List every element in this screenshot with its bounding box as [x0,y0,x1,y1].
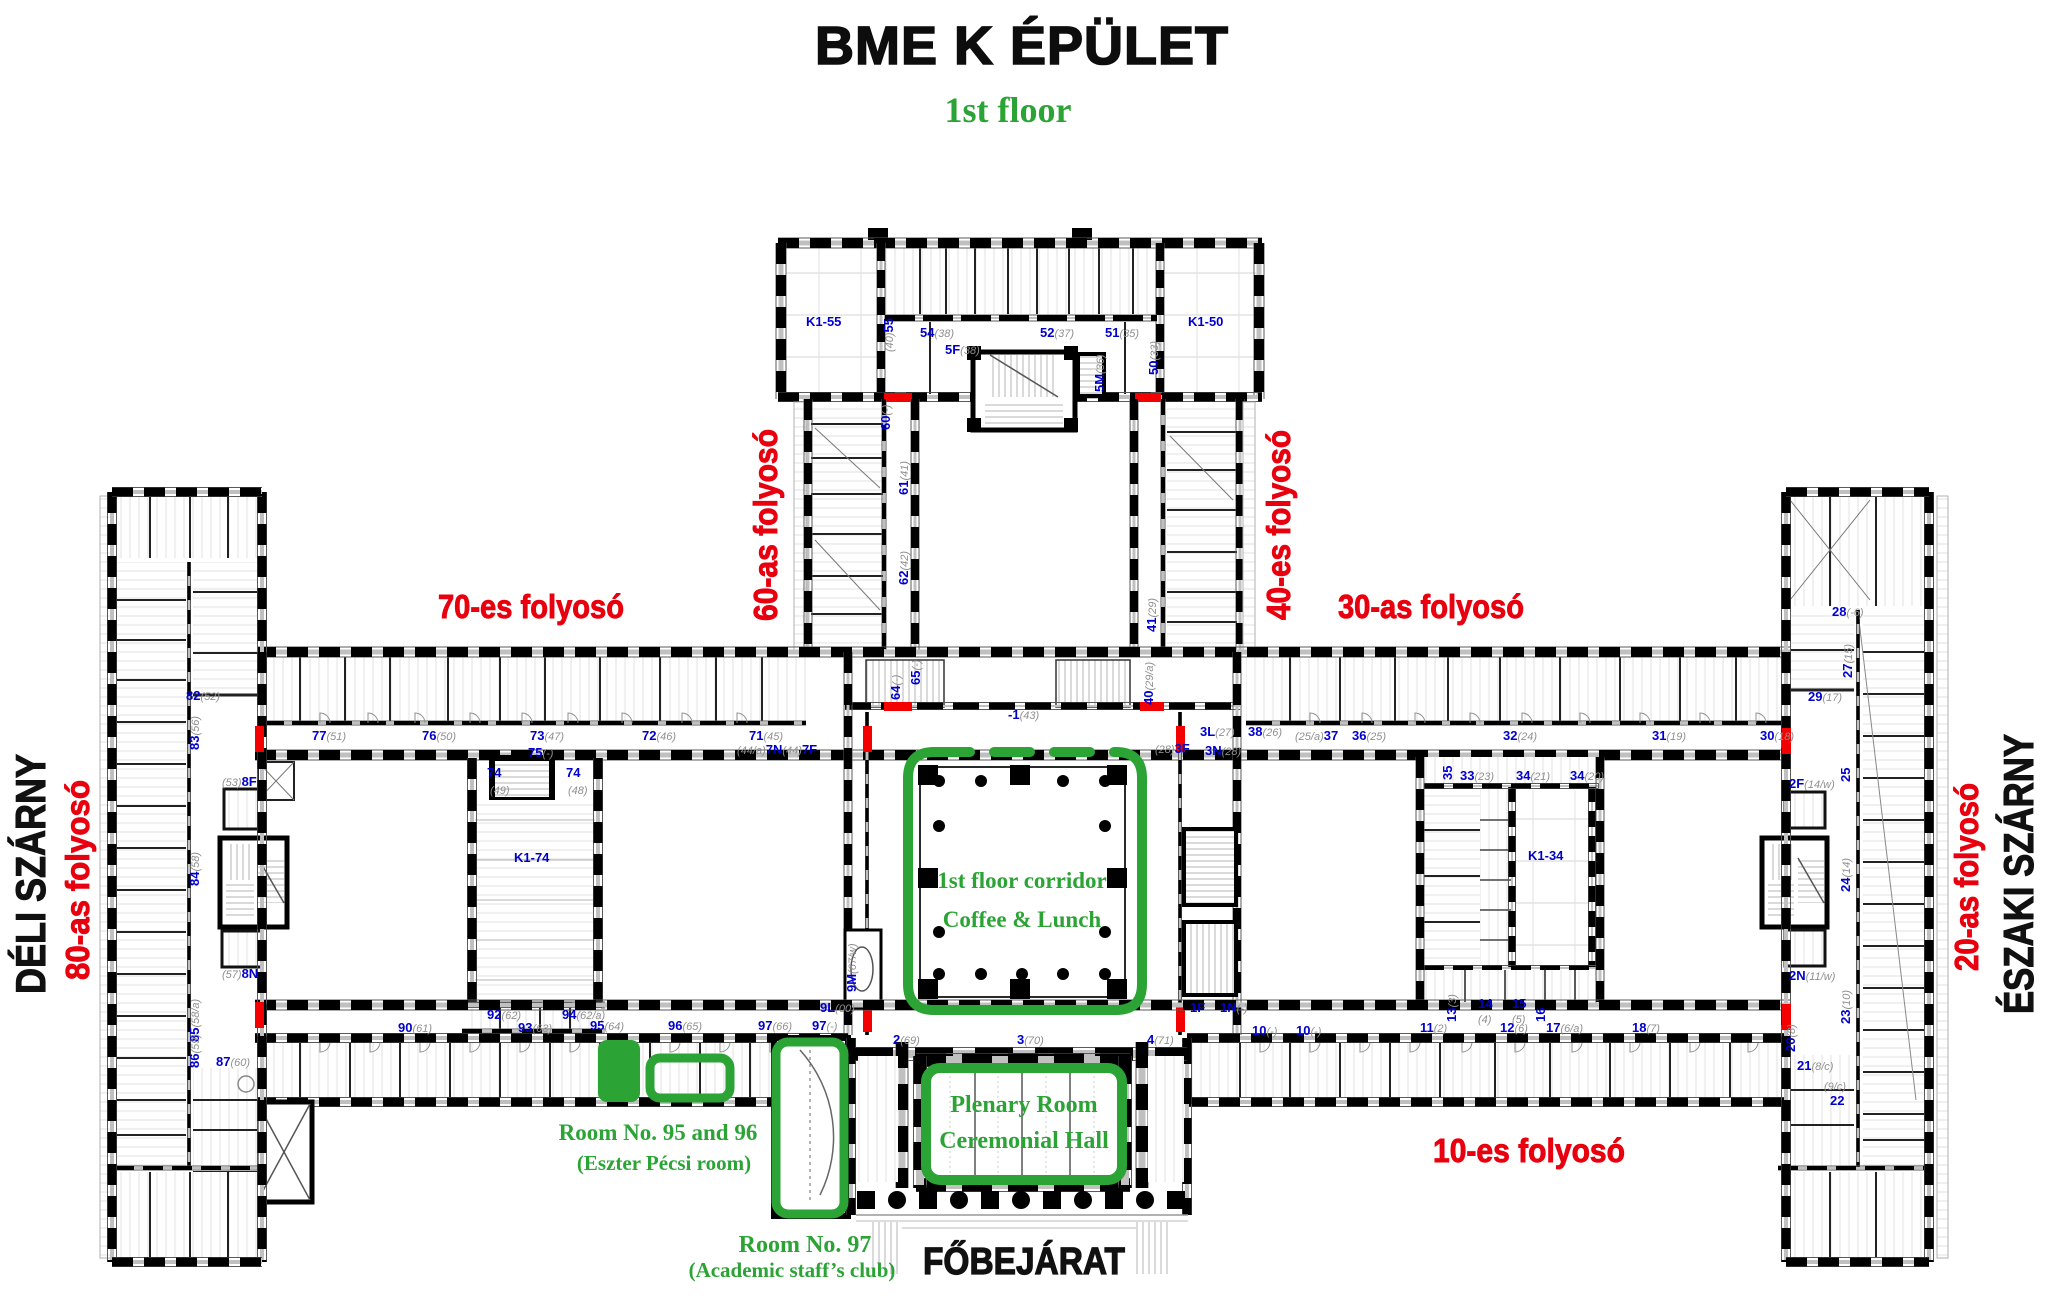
svg-text:K1-55: K1-55 [806,314,841,329]
svg-text:90(61): 90(61) [398,1020,432,1035]
svg-text:31(19): 31(19) [1652,728,1686,743]
svg-text:83(56): 83(56) [187,716,202,750]
svg-text:35: 35 [1440,766,1455,780]
svg-text:61(41): 61(41) [896,461,911,495]
svg-text:2(69): 2(69) [893,1032,920,1047]
svg-text:1st floor corridor: 1st floor corridor [937,868,1106,893]
svg-text:74: 74 [487,765,502,780]
svg-text:38(26): 38(26) [1248,724,1282,739]
svg-text:24(14): 24(14) [1838,858,1853,892]
svg-text:-1(43): -1(43) [1008,707,1039,722]
svg-text:33(23): 33(23) [1460,768,1494,783]
svg-text:1st floor: 1st floor [945,90,1072,130]
svg-text:(4): (4) [1478,1014,1492,1026]
svg-text:9L(00): 9L(00) [820,1000,855,1015]
svg-text:(53)8F: (53)8F [222,774,257,789]
svg-text:62(42): 62(42) [896,551,911,585]
svg-text:72(46): 72(46) [642,728,676,743]
svg-text:13(3): 13(3) [1444,994,1459,1022]
svg-text:28(-6): 28(-6) [1832,604,1864,619]
svg-text:K1-74: K1-74 [514,850,550,865]
svg-text:20(8): 20(8) [1783,1024,1798,1052]
svg-text:2F(14/w): 2F(14/w) [1789,776,1835,791]
svg-text:96(65): 96(65) [668,1018,702,1033]
svg-text:ÉSZAKI SZÁRNY: ÉSZAKI SZÁRNY [1995,734,2042,1014]
svg-text:(Eszter Pécsi room): (Eszter Pécsi room) [577,1151,751,1175]
svg-text:4(71): 4(71) [1147,1032,1174,1047]
svg-text:87(60): 87(60) [216,1054,250,1069]
svg-text:(40)55: (40)55 [881,318,896,352]
svg-text:34(20): 34(20) [1570,768,1604,783]
svg-text:(5): (5) [1512,1014,1526,1026]
svg-text:Room No. 95 and 96: Room No. 95 and 96 [559,1120,758,1145]
svg-text:BME K ÉPÜLET: BME K ÉPÜLET [815,16,1229,76]
svg-text:DÉLI SZÁRNY: DÉLI SZÁRNY [7,754,54,994]
svg-text:K1-34: K1-34 [1528,848,1564,863]
svg-text:16: 16 [1533,1008,1548,1022]
svg-text:41(29): 41(29) [1144,598,1159,632]
svg-text:60(-): 60(-) [878,404,893,430]
svg-text:(57)8N: (57)8N [222,966,258,981]
svg-text:84(58): 84(58) [187,852,202,886]
svg-text:97(-): 97(-) [812,1018,838,1033]
svg-text:64(-): 64(-) [888,674,903,700]
svg-text:82(52): 82(52) [186,688,220,703]
svg-text:10-es folyosó: 10-es folyosó [1433,1132,1625,1169]
svg-text:77(51): 77(51) [312,728,346,743]
svg-text:(Academic staff’s club): (Academic staff’s club) [689,1258,896,1282]
svg-text:40-es folyosó: 40-es folyosó [1260,430,1297,620]
svg-text:2N(11/w): 2N(11/w) [1789,968,1836,983]
svg-text:29(17): 29(17) [1808,689,1842,704]
svg-text:40(29/a): 40(29/a) [1141,661,1156,705]
svg-text:74: 74 [566,765,581,780]
svg-text:Room No. 97: Room No. 97 [739,1232,872,1258]
svg-text:80-as folyosó: 80-as folyosó [59,780,96,980]
svg-text:25: 25 [1838,768,1853,782]
svg-text:92(62): 92(62) [487,1007,521,1022]
svg-text:5F(38): 5F(38) [945,342,980,357]
svg-text:(9/c): (9/c) [1824,1081,1846,1093]
svg-text:30-as folyosó: 30-as folyosó [1338,588,1524,625]
svg-text:95(64): 95(64) [590,1018,624,1033]
svg-text:21(8/c): 21(8/c) [1797,1058,1834,1073]
svg-text:54(38): 54(38) [920,325,954,340]
svg-text:73(47): 73(47) [530,728,564,743]
svg-text:Ceremonial Hall: Ceremonial Hall [939,1128,1109,1154]
svg-text:(28)3F: (28)3F [1155,741,1190,756]
svg-text:3N(28): 3N(28) [1205,743,1242,758]
svg-text:9M(67/w): 9M(67/w) [844,943,859,992]
svg-text:32(24): 32(24) [1503,728,1537,743]
svg-text:22: 22 [1830,1093,1844,1108]
svg-text:30(18): 30(18) [1760,728,1794,743]
svg-text:75(-): 75(-) [528,745,554,760]
svg-text:97(66): 97(66) [758,1018,792,1033]
svg-text:3L(27): 3L(27) [1200,724,1235,739]
svg-text:60-as folyosó: 60-as folyosó [747,429,784,621]
svg-text:Coffee & Lunch: Coffee & Lunch [943,907,1102,932]
svg-text:1N(-): 1N(-) [1220,1000,1248,1015]
svg-text:36(25): 36(25) [1352,728,1386,743]
svg-text:51(35): 51(35) [1105,325,1139,340]
svg-text:20-as folyosó: 20-as folyosó [1948,783,1985,971]
svg-text:(25/a)37: (25/a)37 [1295,728,1338,743]
svg-text:(49): (49) [490,785,510,797]
svg-text:(48): (48) [568,785,588,797]
svg-text:1F: 1F [1190,1000,1205,1015]
svg-text:14: 14 [1478,996,1493,1011]
svg-text:76(50): 76(50) [422,728,456,743]
svg-text:(44/a)7N(44)7F: (44/a)7N(44)7F [737,742,817,757]
svg-text:93(63): 93(63) [518,1020,552,1035]
svg-text:23(10): 23(10) [1838,990,1853,1024]
svg-text:71(45): 71(45) [749,728,783,743]
svg-text:65(-): 65(-) [908,659,923,685]
svg-text:86(59): 86(59) [187,1034,202,1068]
svg-text:18(7): 18(7) [1632,1020,1660,1035]
svg-text:17(6/a): 17(6/a) [1546,1020,1583,1035]
svg-text:70-es folyosó: 70-es folyosó [438,588,624,625]
svg-text:3(70): 3(70) [1017,1032,1044,1047]
svg-text:52(37): 52(37) [1040,325,1074,340]
svg-text:K1-50: K1-50 [1188,314,1223,329]
svg-text:Plenary Room: Plenary Room [950,1092,1097,1118]
svg-text:27(15): 27(15) [1840,644,1855,678]
svg-text:10(-): 10(-) [1252,1023,1278,1038]
svg-text:FŐBEJÁRAT: FŐBEJÁRAT [923,1239,1125,1283]
svg-text:34(21): 34(21) [1516,768,1550,783]
svg-text:15: 15 [1512,996,1526,1011]
svg-text:10(-): 10(-) [1296,1023,1322,1038]
svg-text:5M(36): 5M(36) [1092,354,1107,392]
svg-text:50(33): 50(33) [1146,341,1161,375]
